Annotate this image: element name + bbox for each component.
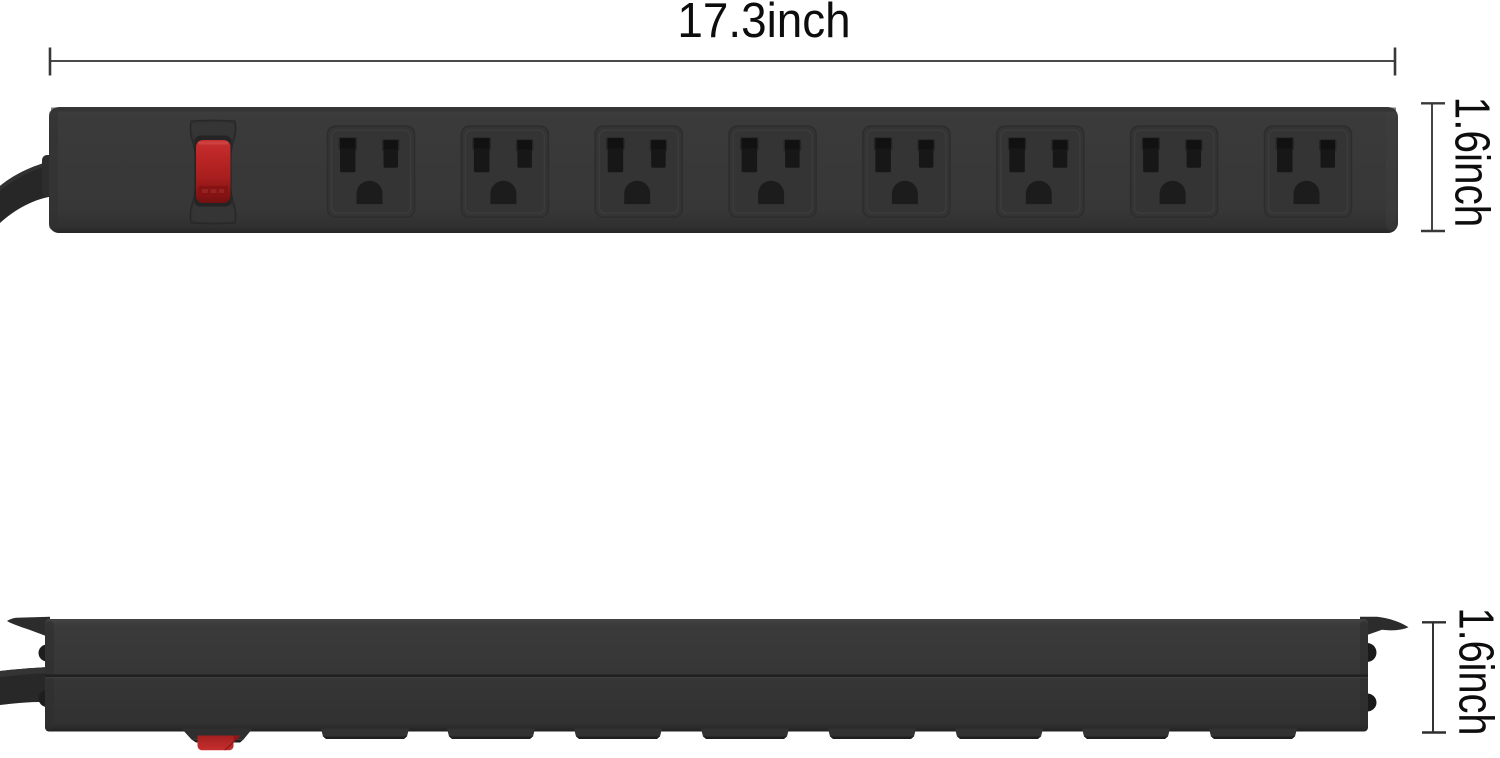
svg-text:1.6inch: 1.6inch [1449, 608, 1500, 736]
svg-text:17.3inch: 17.3inch [677, 0, 850, 48]
svg-text:1.6inch: 1.6inch [1445, 97, 1500, 228]
